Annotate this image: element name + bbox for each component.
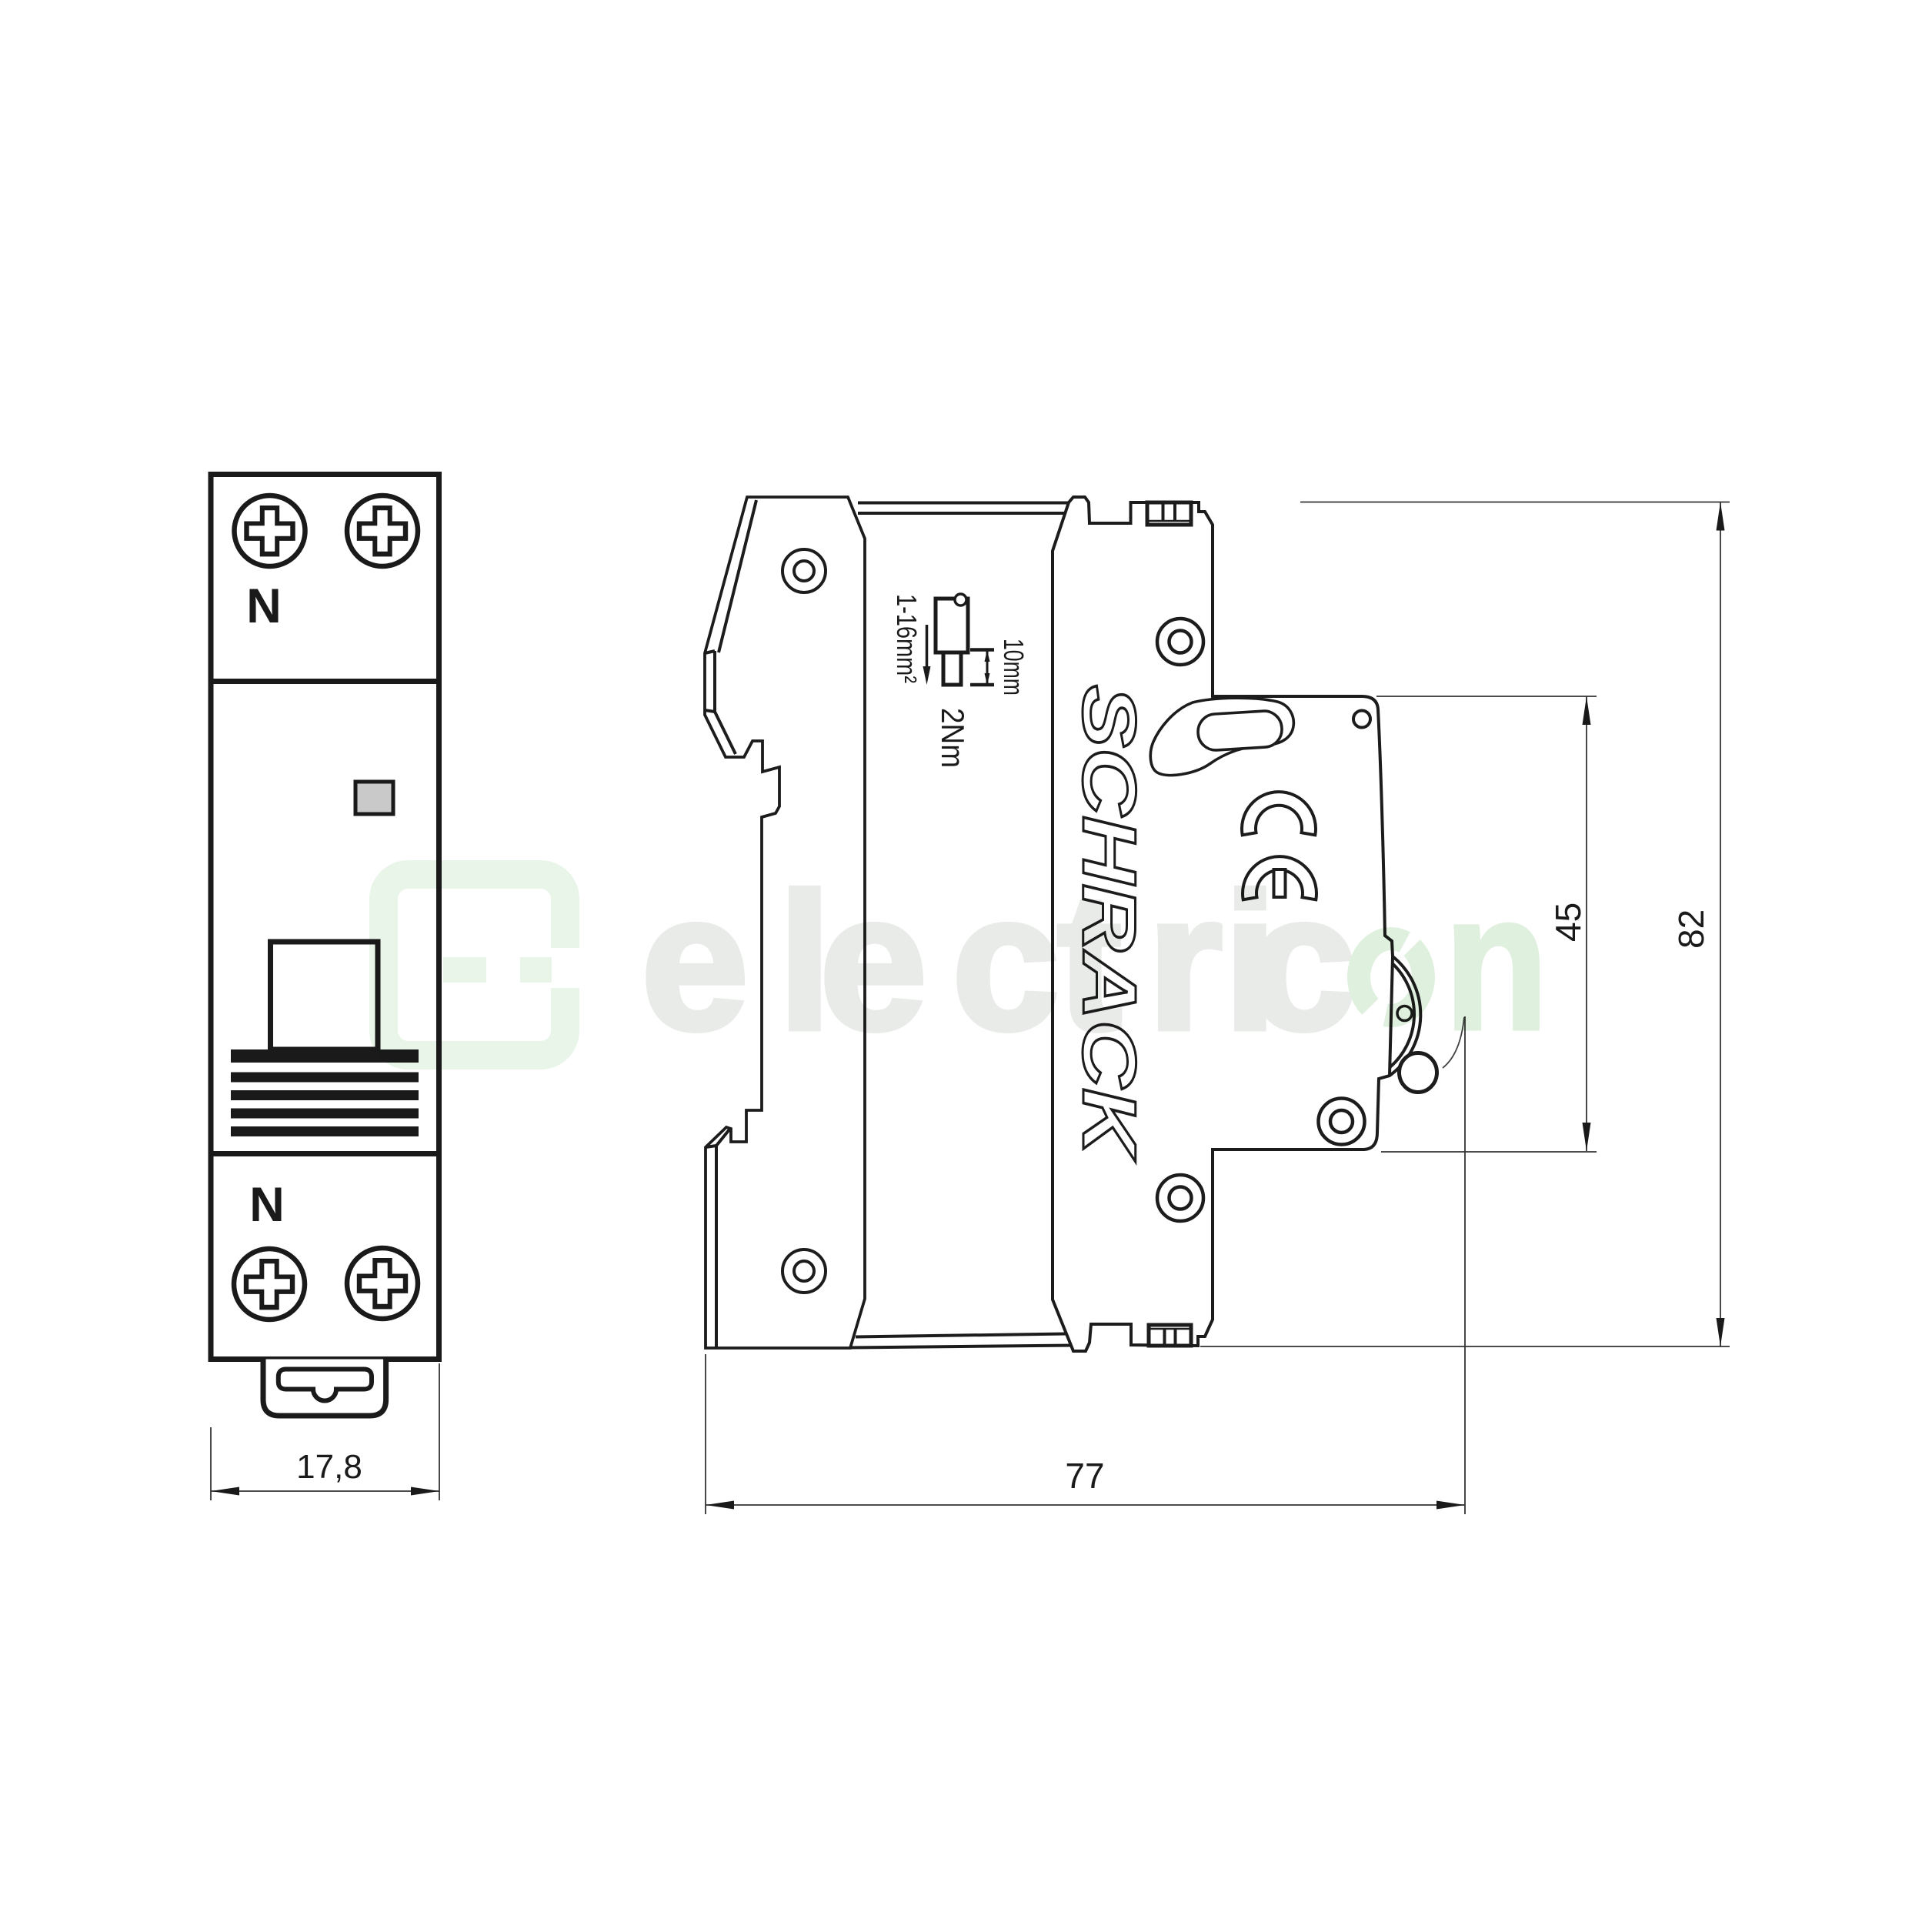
svg-text:n: n <box>1444 854 1548 1070</box>
svg-text:2Nm: 2Nm <box>935 708 971 768</box>
svg-text:electric: electric <box>641 854 1356 1070</box>
svg-text:82: 82 <box>1671 909 1711 949</box>
svg-text:45: 45 <box>1548 903 1588 942</box>
svg-text:1-16mm²: 1-16mm² <box>891 594 923 683</box>
svg-text:10mm: 10mm <box>998 639 1029 696</box>
svg-text:N: N <box>249 1178 285 1232</box>
svg-text:N: N <box>246 579 282 633</box>
svg-text:77: 77 <box>1065 1456 1104 1496</box>
svg-text:17,8: 17,8 <box>296 1448 362 1486</box>
